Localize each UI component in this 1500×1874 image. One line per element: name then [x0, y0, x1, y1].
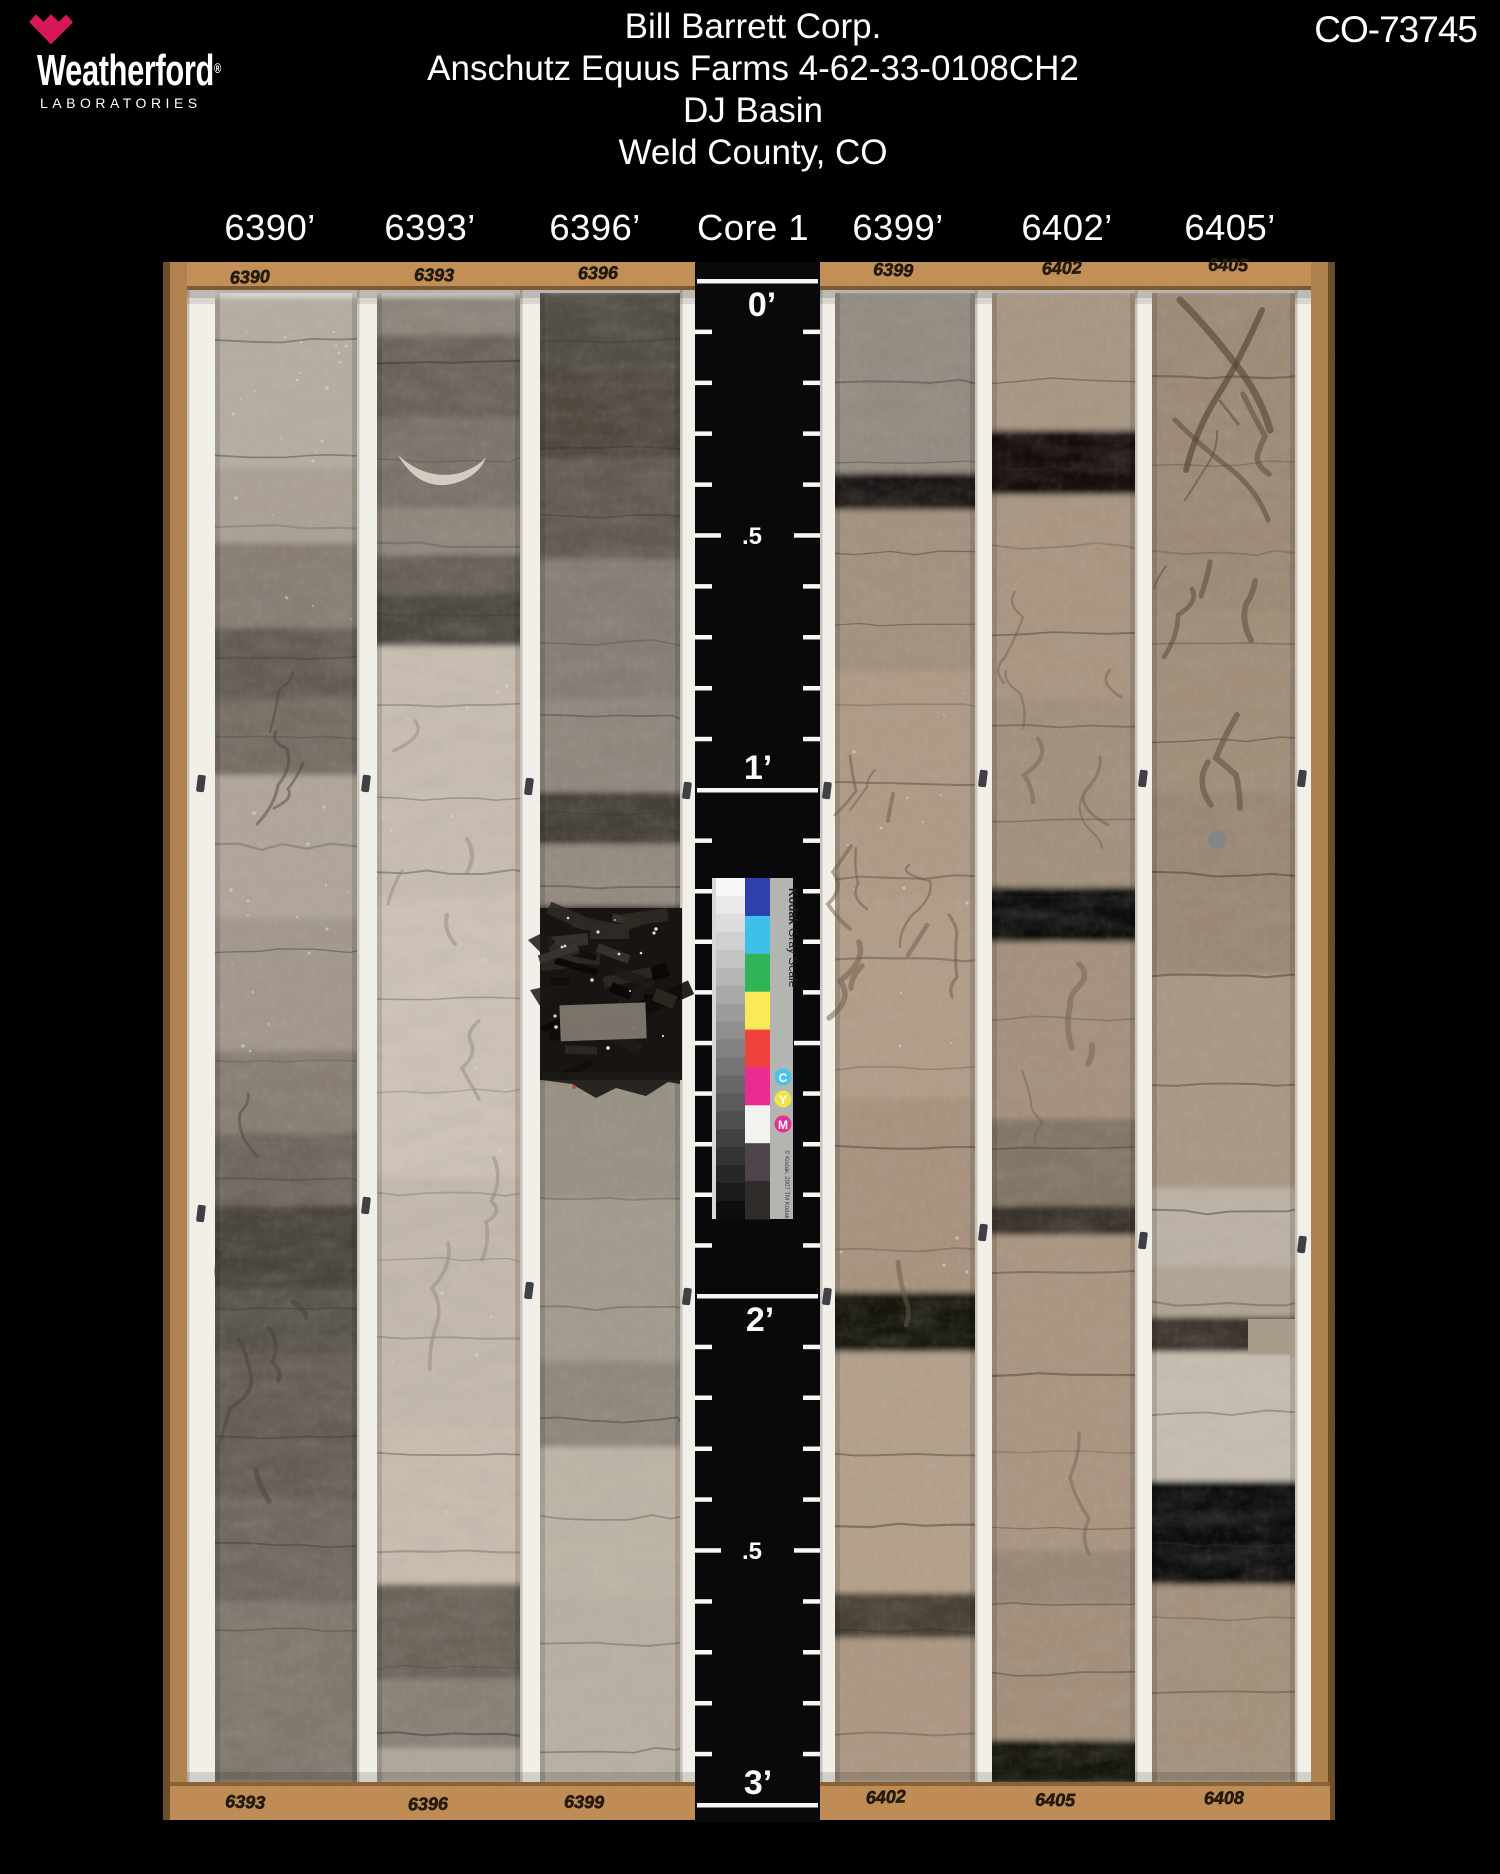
svg-text:0’: 0’ — [748, 286, 776, 324]
svg-text:6405: 6405 — [1208, 255, 1249, 276]
svg-text:Y: Y — [779, 1093, 787, 1107]
svg-text:6405: 6405 — [1035, 1790, 1076, 1811]
svg-text:6396: 6396 — [408, 1794, 449, 1815]
svg-text:6393: 6393 — [414, 265, 454, 286]
svg-text:6390: 6390 — [229, 266, 270, 287]
svg-text:2’: 2’ — [746, 1301, 774, 1339]
svg-text:© Kodak, 2007 TM Kodak: © Kodak, 2007 TM Kodak — [783, 1150, 790, 1220]
svg-text:3’: 3’ — [744, 1764, 772, 1802]
svg-text:6399: 6399 — [873, 259, 914, 280]
svg-text:C: C — [779, 1071, 788, 1085]
svg-text:6399: 6399 — [564, 1792, 604, 1813]
svg-text:M: M — [778, 1118, 788, 1132]
svg-text:6393: 6393 — [225, 1791, 266, 1812]
svg-text:6396: 6396 — [578, 263, 619, 284]
svg-text:6402: 6402 — [865, 1786, 906, 1807]
svg-text:6408: 6408 — [1204, 1788, 1244, 1809]
svg-text:1’: 1’ — [744, 749, 772, 787]
svg-text:Kodak Gray Scale: Kodak Gray Scale — [786, 888, 800, 988]
svg-text:.5: .5 — [742, 523, 762, 550]
svg-text:6402: 6402 — [1041, 257, 1082, 278]
svg-text:.5: .5 — [742, 1538, 762, 1565]
